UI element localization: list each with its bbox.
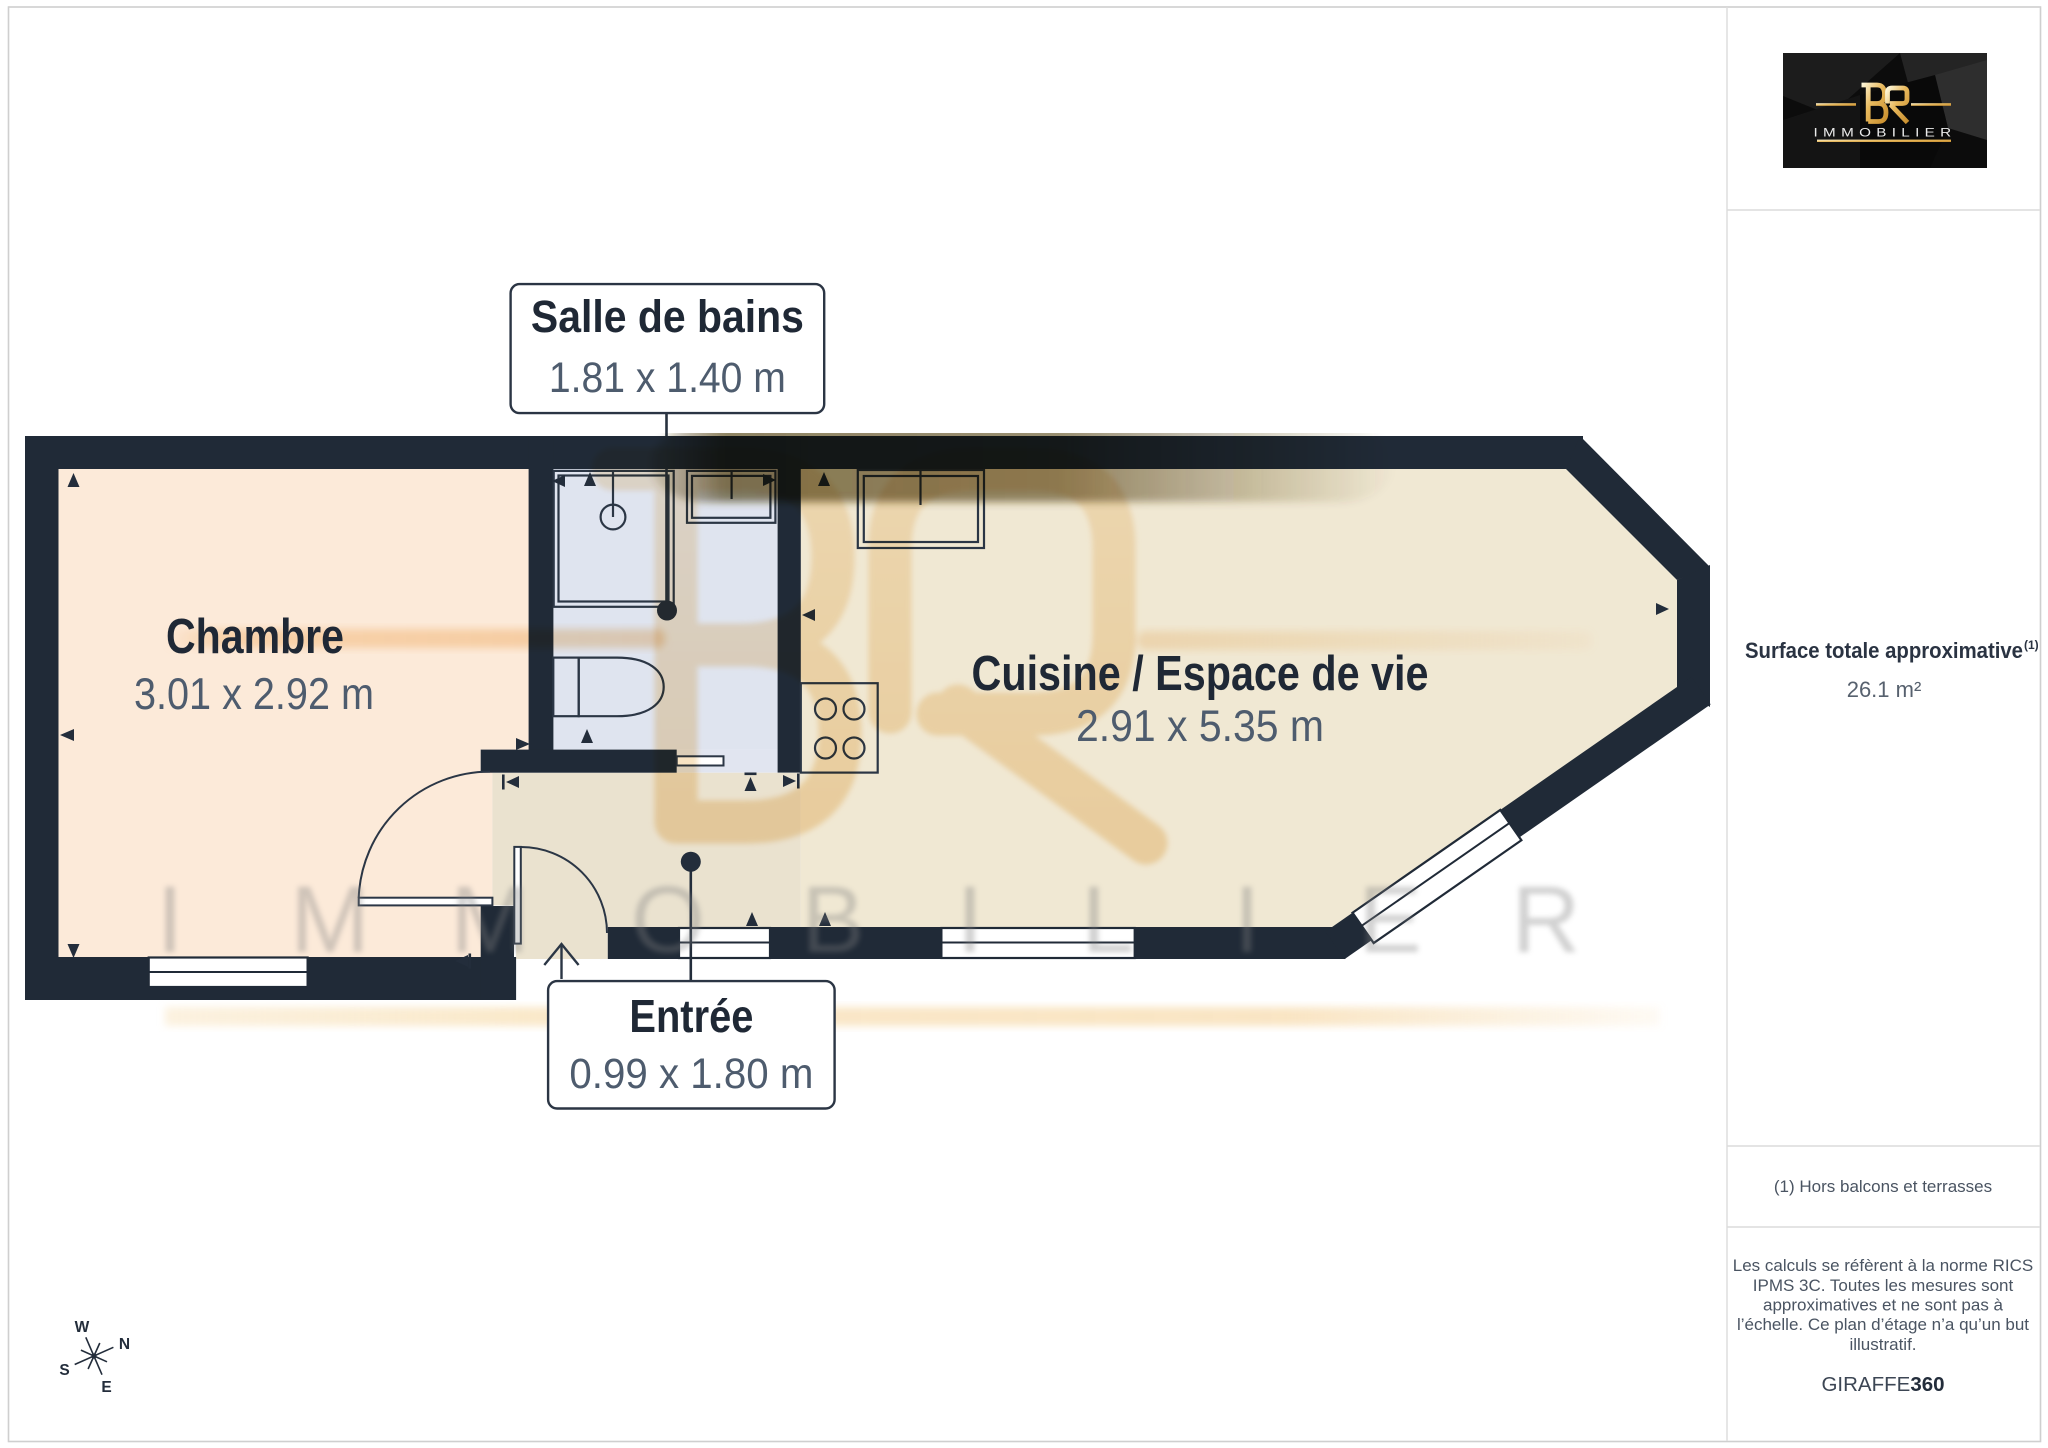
svg-text:W: W <box>75 1319 90 1336</box>
svg-text:N: N <box>119 1336 130 1353</box>
svg-text:Entrée: Entrée <box>629 990 753 1042</box>
svg-text:M: M <box>290 867 369 973</box>
svg-text:E: E <box>1358 867 1421 973</box>
svg-text:I: I <box>157 867 183 973</box>
svg-text:26.1 m²: 26.1 m² <box>1847 677 1922 702</box>
svg-text:Les calculs se réfèrent à la n: Les calculs se réfèrent à la norme RICS <box>1733 1256 2033 1275</box>
svg-text:0.99 x 1.80 m: 0.99 x 1.80 m <box>569 1050 813 1098</box>
svg-text:M: M <box>450 867 529 973</box>
svg-text:2.91 x 5.35 m: 2.91 x 5.35 m <box>1076 702 1324 751</box>
svg-text:IMMOBILIER: IMMOBILIER <box>1814 126 1957 140</box>
svg-text:Salle de bains: Salle de bains <box>531 291 804 342</box>
svg-text:GIRAFFE360: GIRAFFE360 <box>1821 1373 1944 1396</box>
svg-text:Cuisine / Espace de vie: Cuisine / Espace de vie <box>972 647 1429 701</box>
svg-text:approximatives et ne sont pas: approximatives et ne sont pas à <box>1763 1296 2004 1315</box>
svg-text:IPMS 3C. Toutes les mesures so: IPMS 3C. Toutes les mesures sont <box>1753 1276 2014 1295</box>
svg-text:I: I <box>957 867 983 973</box>
svg-text:S: S <box>59 1362 69 1379</box>
svg-text:1.81 x 1.40 m: 1.81 x 1.40 m <box>549 354 786 402</box>
svg-text:Surface totale approximative: Surface totale approximative <box>1745 638 2023 663</box>
svg-text:(1) Hors balcons et terrasses: (1) Hors balcons et terrasses <box>1774 1177 1992 1196</box>
svg-text:l’échelle. Ce plan d’étage n’a: l’échelle. Ce plan d’étage n’a qu’un but <box>1737 1315 2029 1334</box>
svg-text:B: B <box>801 867 864 973</box>
svg-text:(1): (1) <box>2024 638 2039 652</box>
svg-text:3.01 x 2.92 m: 3.01 x 2.92 m <box>134 670 374 719</box>
svg-text:R: R <box>1512 867 1581 973</box>
svg-text:I: I <box>1234 867 1260 973</box>
svg-text:illustratif.: illustratif. <box>1849 1335 1916 1354</box>
svg-text:Chambre: Chambre <box>166 610 344 664</box>
svg-text:O: O <box>631 867 705 973</box>
svg-text:L: L <box>1082 867 1135 973</box>
svg-text:E: E <box>101 1379 111 1396</box>
